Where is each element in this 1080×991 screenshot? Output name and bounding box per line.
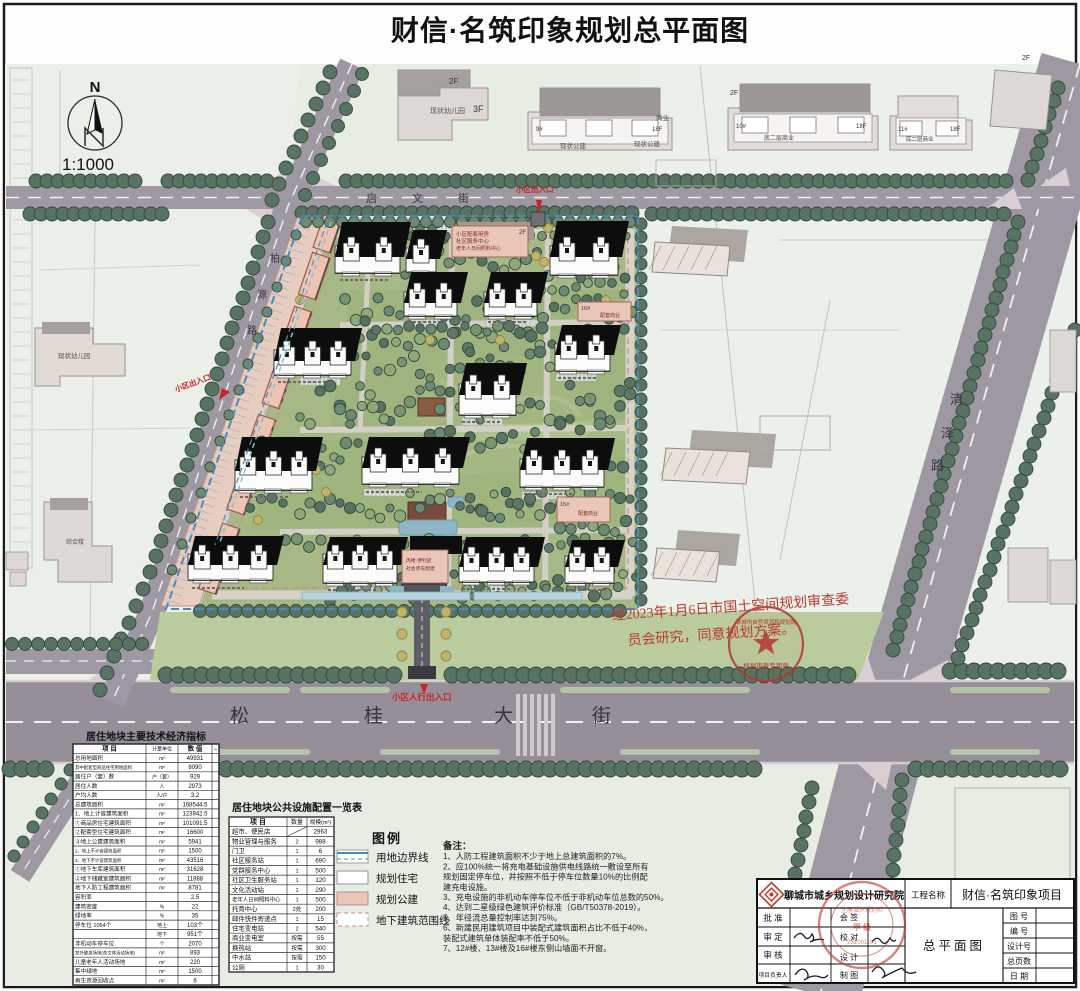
svg-text:财信·名筑印象规划总平面图: 财信·名筑印象规划总平面图 [391, 14, 749, 46]
svg-text:备注：: 备注： [442, 840, 472, 852]
svg-text:工程名称: 工程名称 [911, 890, 946, 900]
svg-text:建筑密度: 建筑密度 [75, 902, 98, 910]
svg-text:1: 1 [295, 859, 298, 865]
svg-text:168544.5: 168544.5 [182, 802, 208, 808]
svg-text:690: 690 [315, 858, 326, 865]
svg-text:户均人数: 户均人数 [75, 791, 98, 799]
svg-text:11888: 11888 [187, 876, 204, 882]
svg-text:甲 级: 甲 级 [853, 922, 872, 932]
svg-text:聊城市自然资源和规划局: 聊城市自然资源和规划局 [736, 618, 797, 626]
svg-text:9#: 9# [536, 127, 543, 133]
svg-text:22: 22 [192, 904, 199, 910]
svg-text:按需: 按需 [291, 944, 303, 952]
svg-text:图例: 图例 [372, 831, 402, 846]
svg-text:②配套型住宅建筑面积: ②配套型住宅建筑面积 [75, 828, 131, 836]
svg-text:8090: 8090 [188, 765, 202, 771]
svg-text:室外健身场地(含文体活动场地): 室外健身场地(含文体活动场地) [75, 950, 136, 957]
svg-text:1500: 1500 [188, 969, 202, 975]
svg-text:人/户: 人/户 [156, 792, 167, 799]
svg-text:30: 30 [317, 964, 324, 971]
svg-text:总平面图: 总平面图 [923, 939, 985, 953]
svg-text:小区人行出入口: 小区人行出入口 [391, 692, 452, 702]
svg-text:①商品房住宅建筑面积: ①商品房住宅建筑面积 [75, 819, 131, 827]
svg-text:2、应100%统一将充电基础设施供电线路统一敷设至所有: 2、应100%统一将充电基础设施供电线路统一敷设至所有 [443, 861, 649, 871]
svg-text:2: 2 [295, 839, 298, 845]
svg-text:m²: m² [159, 849, 165, 855]
svg-text:4、达到二星级绿色建筑评价标准（GB/T50378-2019: 4、达到二星级绿色建筑评价标准（GB/T50378-2019）。 [443, 902, 645, 912]
svg-text:商业: 商业 [656, 113, 670, 122]
svg-text:总建筑面积: 总建筑面积 [75, 800, 103, 808]
svg-text:社区卫生服务站: 社区卫生服务站 [232, 875, 277, 884]
svg-text:现状公建: 现状公建 [634, 139, 661, 148]
svg-text:5941: 5941 [188, 839, 202, 845]
svg-text:m²: m² [159, 978, 165, 984]
svg-text:300: 300 [315, 945, 326, 952]
svg-text:制 图: 制 图 [840, 970, 858, 980]
svg-text:290: 290 [315, 887, 326, 894]
svg-text:非机动车停车位: 非机动车停车位 [75, 939, 115, 947]
svg-text:3.2: 3.2 [191, 793, 200, 799]
svg-text:%: % [160, 914, 165, 920]
svg-text:日 期: 日 期 [1010, 972, 1028, 981]
svg-text:装配式建筑单体装配率不低于50%。: 装配式建筑单体装配率不低于50%。 [443, 933, 574, 943]
svg-text:N: N [90, 79, 101, 96]
svg-text:路: 路 [247, 324, 257, 337]
svg-text:231001191: 231001191 [847, 940, 877, 946]
svg-text:商业变电室: 商业变电室 [232, 933, 265, 942]
svg-text:15#: 15# [560, 502, 570, 508]
svg-text:m²: m² [159, 960, 165, 966]
svg-text:103个: 103个 [187, 922, 203, 929]
svg-text:邮件快件寄递点: 邮件快件寄递点 [232, 914, 277, 923]
svg-text:门卫: 门卫 [232, 846, 245, 855]
svg-text:总用地面积: 总用地面积 [75, 754, 103, 762]
svg-text:户（套）: 户（套） [152, 773, 172, 780]
svg-text:图 号: 图 号 [1010, 912, 1028, 921]
svg-text:规划固定停车位，并按照不低于停车位数量10%的比例配: 规划固定停车位，并按照不低于停车位数量10%的比例配 [443, 872, 648, 882]
svg-text:2F: 2F [519, 230, 526, 236]
svg-text:项 目: 项 目 [250, 817, 266, 826]
svg-text:地下建筑范围线: 地下建筑范围线 [376, 914, 450, 927]
svg-text:编 号: 编 号 [1010, 926, 1028, 936]
svg-text:老年人日间照料中心: 老年人日间照料中心 [232, 895, 281, 903]
svg-text:文化活动站: 文化活动站 [232, 885, 265, 894]
svg-text:m²: m² [159, 812, 165, 818]
svg-text:②地下储藏室建筑面积: ②地下储藏室建筑面积 [75, 874, 131, 882]
svg-text:底二层商业: 底二层商业 [906, 135, 934, 143]
svg-text:15: 15 [317, 916, 324, 923]
svg-text:路: 路 [931, 458, 944, 473]
svg-text:按需: 按需 [291, 934, 303, 942]
svg-text:绿地率: 绿地率 [75, 912, 92, 920]
svg-text:540: 540 [315, 926, 326, 933]
svg-text:2963: 2963 [314, 829, 328, 836]
svg-text:m²: m² [159, 969, 165, 975]
svg-text:丙楼·便利店: 丙楼·便利店 [406, 557, 432, 564]
svg-text:1: 1 [295, 897, 298, 903]
svg-text:注册城乡规划师: 注册城乡规划师 [841, 906, 883, 914]
svg-text:再生资源回收点: 再生资源回收点 [75, 976, 115, 984]
svg-text:49931: 49931 [187, 756, 204, 762]
svg-text:地下: 地下 [157, 931, 167, 938]
svg-text:120: 120 [315, 877, 326, 884]
svg-text:31628: 31628 [187, 867, 204, 873]
svg-text:数 值: 数 值 [188, 744, 203, 753]
svg-text:规划住宅: 规划住宅 [376, 872, 418, 885]
svg-text:2F: 2F [730, 90, 738, 97]
svg-text:综合楼: 综合楼 [66, 538, 84, 546]
svg-text:%: % [160, 904, 165, 910]
svg-text:桂: 桂 [364, 705, 383, 727]
svg-text:929: 929 [190, 774, 201, 780]
svg-text:数量: 数量 [291, 818, 303, 826]
svg-text:1: 1 [295, 878, 298, 884]
svg-text:101091.5: 101091.5 [182, 821, 208, 827]
svg-text:500: 500 [315, 867, 326, 874]
svg-text:500: 500 [315, 896, 326, 903]
svg-text:按需: 按需 [291, 954, 303, 962]
svg-text:18F: 18F [950, 127, 961, 133]
svg-text:小区配套用房: 小区配套用房 [456, 230, 490, 238]
svg-text:地上: 地上 [157, 922, 167, 929]
svg-text:2、地上不计容建筑面积: 2、地上不计容建筑面积 [75, 848, 122, 855]
svg-text:3、地下不计容建筑面积: 3、地下不计容建筑面积 [75, 857, 122, 864]
svg-text:8781: 8781 [188, 886, 202, 892]
svg-text:150: 150 [315, 955, 326, 962]
svg-text:m²: m² [159, 821, 165, 827]
svg-text:1: 1 [295, 888, 298, 894]
svg-text:社区服务站: 社区服务站 [232, 856, 265, 865]
svg-text:小区出入口: 小区出入口 [516, 184, 554, 194]
svg-text:社会停车配建: 社会停车配建 [406, 565, 435, 572]
svg-text:泽: 泽 [941, 426, 954, 441]
svg-text:6: 6 [319, 848, 323, 855]
svg-text:配套商业: 配套商业 [600, 312, 620, 319]
svg-text:2F: 2F [449, 77, 458, 86]
svg-text:财信·名筑印象项目: 财信·名筑印象项目 [962, 887, 1062, 902]
svg-text:m²: m² [159, 876, 165, 882]
svg-text:893: 893 [190, 951, 201, 957]
svg-text:托育中心: 托育中心 [232, 904, 258, 913]
svg-text:2F: 2F [1022, 55, 1030, 62]
svg-text:物业管理与服务: 物业管理与服务 [232, 836, 277, 845]
svg-text:文: 文 [412, 191, 423, 205]
svg-text:m²: m² [159, 802, 165, 808]
svg-text:人: 人 [159, 784, 164, 790]
svg-text:18F: 18F [652, 127, 663, 133]
svg-text:松: 松 [230, 705, 249, 727]
svg-text:个: 个 [159, 941, 164, 947]
svg-text:集中绿地: 集中绿地 [75, 967, 98, 975]
svg-text:123942.5: 123942.5 [182, 812, 208, 818]
svg-text:1、人防工程建筑面积不少于地上总建筑面积的7%。: 1、人防工程建筑面积不少于地上总建筑面积的7%。 [443, 851, 631, 861]
svg-text:项 目: 项 目 [102, 744, 117, 753]
svg-text:停车位 1054个: 停车位 1054个 [75, 921, 112, 929]
svg-text:审 核: 审 核 [763, 950, 783, 960]
svg-text:951个: 951个 [187, 931, 203, 938]
svg-text:16#: 16# [581, 306, 591, 312]
svg-text:1:1000: 1:1000 [62, 155, 114, 174]
svg-text:1: 1 [295, 917, 298, 923]
svg-text:规划审查专用章: 规划审查专用章 [743, 661, 789, 670]
svg-text:地下人防工程建筑面积: 地下人防工程建筑面积 [75, 884, 131, 892]
svg-text:儿童老年人活动场地: 儿童老年人活动场地 [75, 958, 126, 966]
svg-text:m²: m² [159, 765, 165, 771]
svg-text:用地边界线: 用地边界线 [376, 851, 429, 864]
svg-text:10#: 10# [736, 124, 747, 130]
svg-text:2处: 2处 [293, 905, 302, 913]
svg-text:5、年径流总量控制率达到75%。: 5、年径流总量控制率达到75%。 [443, 912, 562, 922]
svg-text:988: 988 [315, 838, 326, 845]
svg-text:③地上公建建筑面积: ③地上公建建筑面积 [75, 837, 126, 845]
svg-text:现状公建: 现状公建 [560, 141, 587, 150]
svg-text:43516: 43516 [187, 858, 204, 864]
svg-text:1: 1 [295, 965, 298, 971]
svg-text:200: 200 [315, 906, 326, 913]
svg-text:1500: 1500 [188, 849, 202, 855]
svg-text:2: 2 [295, 927, 298, 933]
svg-text:批 准: 批 准 [763, 913, 783, 923]
svg-text:项目负责人: 项目负责人 [759, 971, 788, 979]
svg-text:建充电设施。: 建充电设施。 [443, 882, 492, 892]
svg-text:m²: m² [159, 886, 165, 892]
svg-text:m²: m² [159, 858, 165, 864]
svg-text:换热站: 换热站 [232, 943, 252, 952]
svg-text:总页数: 总页数 [1007, 956, 1031, 966]
svg-text:m²: m² [159, 756, 165, 762]
svg-text:底二层商业: 底二层商业 [764, 134, 794, 142]
svg-text:大: 大 [494, 705, 513, 727]
svg-text:3F: 3F [473, 104, 484, 114]
svg-text:配套商业: 配套商业 [578, 510, 598, 517]
svg-text:社区服务中心: 社区服务中心 [456, 237, 490, 245]
svg-text:柏: 柏 [270, 252, 280, 265]
svg-text:启: 启 [366, 192, 377, 205]
svg-text:中水站: 中水站 [232, 953, 252, 962]
svg-text:m²: m² [159, 951, 165, 957]
svg-text:规模(m²): 规模(m²) [310, 818, 332, 826]
svg-text:住宅变电站: 住宅变电站 [232, 924, 265, 933]
svg-text:35: 35 [192, 914, 199, 920]
svg-text:1: 1 [295, 868, 298, 874]
svg-text:公厕: 公厕 [232, 963, 245, 971]
svg-text:2973: 2973 [188, 784, 202, 790]
svg-text:居住户（套）数: 居住户（套）数 [75, 772, 115, 780]
svg-text:①地下车库建筑面积: ①地下车库建筑面积 [75, 865, 126, 873]
svg-text:老年人日间照料中心: 老年人日间照料中心 [456, 245, 501, 252]
svg-text:居住地块公共设施配置一览表: 居住地块公共设施配置一览表 [232, 801, 363, 814]
svg-text:清: 清 [950, 392, 963, 407]
svg-text:其中配套型商品住宅用地面积: 其中配套型商品住宅用地面积 [75, 764, 133, 771]
svg-text:16600: 16600 [187, 830, 204, 836]
svg-text:18F: 18F [856, 124, 867, 130]
svg-text:街: 街 [458, 191, 469, 205]
svg-text:55: 55 [317, 935, 324, 942]
svg-text:现状幼儿园: 现状幼儿园 [58, 351, 91, 360]
svg-text:11#: 11# [898, 127, 908, 133]
svg-text:源: 源 [257, 288, 267, 301]
svg-text:220: 220 [190, 960, 201, 966]
svg-text:现状幼儿园: 现状幼儿园 [430, 106, 465, 115]
svg-text:规划公建: 规划公建 [376, 893, 418, 906]
svg-text:m: m [214, 748, 217, 752]
svg-text:1、地上计容建筑面积: 1、地上计容建筑面积 [75, 810, 129, 818]
svg-text:党群服务中心: 党群服务中心 [232, 865, 271, 874]
svg-text:7、12#楼、13#楼及16#楼东侧山墙面不开窗。: 7、12#楼、13#楼及16#楼东侧山墙面不开窗。 [443, 943, 611, 953]
svg-text:m²: m² [159, 830, 165, 836]
svg-text:m²: m² [159, 839, 165, 845]
svg-text:2070: 2070 [188, 941, 202, 947]
svg-text:2.5: 2.5 [191, 895, 200, 901]
svg-text:3、充电设施的非机动车停车位不低于非机动车位总数的50%。: 3、充电设施的非机动车停车位不低于非机动车位总数的50%。 [443, 892, 669, 902]
svg-text:居住人数: 居住人数 [75, 782, 98, 790]
svg-text:6、新建民用建筑项目中装配式建筑面积占比不低于40%，: 6、新建民用建筑项目中装配式建筑面积占比不低于40%， [443, 923, 652, 933]
svg-text:容积率: 容积率 [75, 893, 92, 901]
svg-text:街: 街 [592, 705, 611, 727]
svg-text:1: 1 [295, 849, 298, 855]
svg-text:计量单位: 计量单位 [152, 746, 172, 753]
svg-text:居住地块主要技术经济指标: 居住地块主要技术经济指标 [86, 730, 206, 743]
svg-text:设计号: 设计号 [1007, 941, 1031, 951]
svg-text:m²: m² [159, 867, 165, 873]
svg-text:超市、便民店: 超市、便民店 [232, 827, 271, 836]
svg-text:审 定: 审 定 [763, 932, 783, 942]
